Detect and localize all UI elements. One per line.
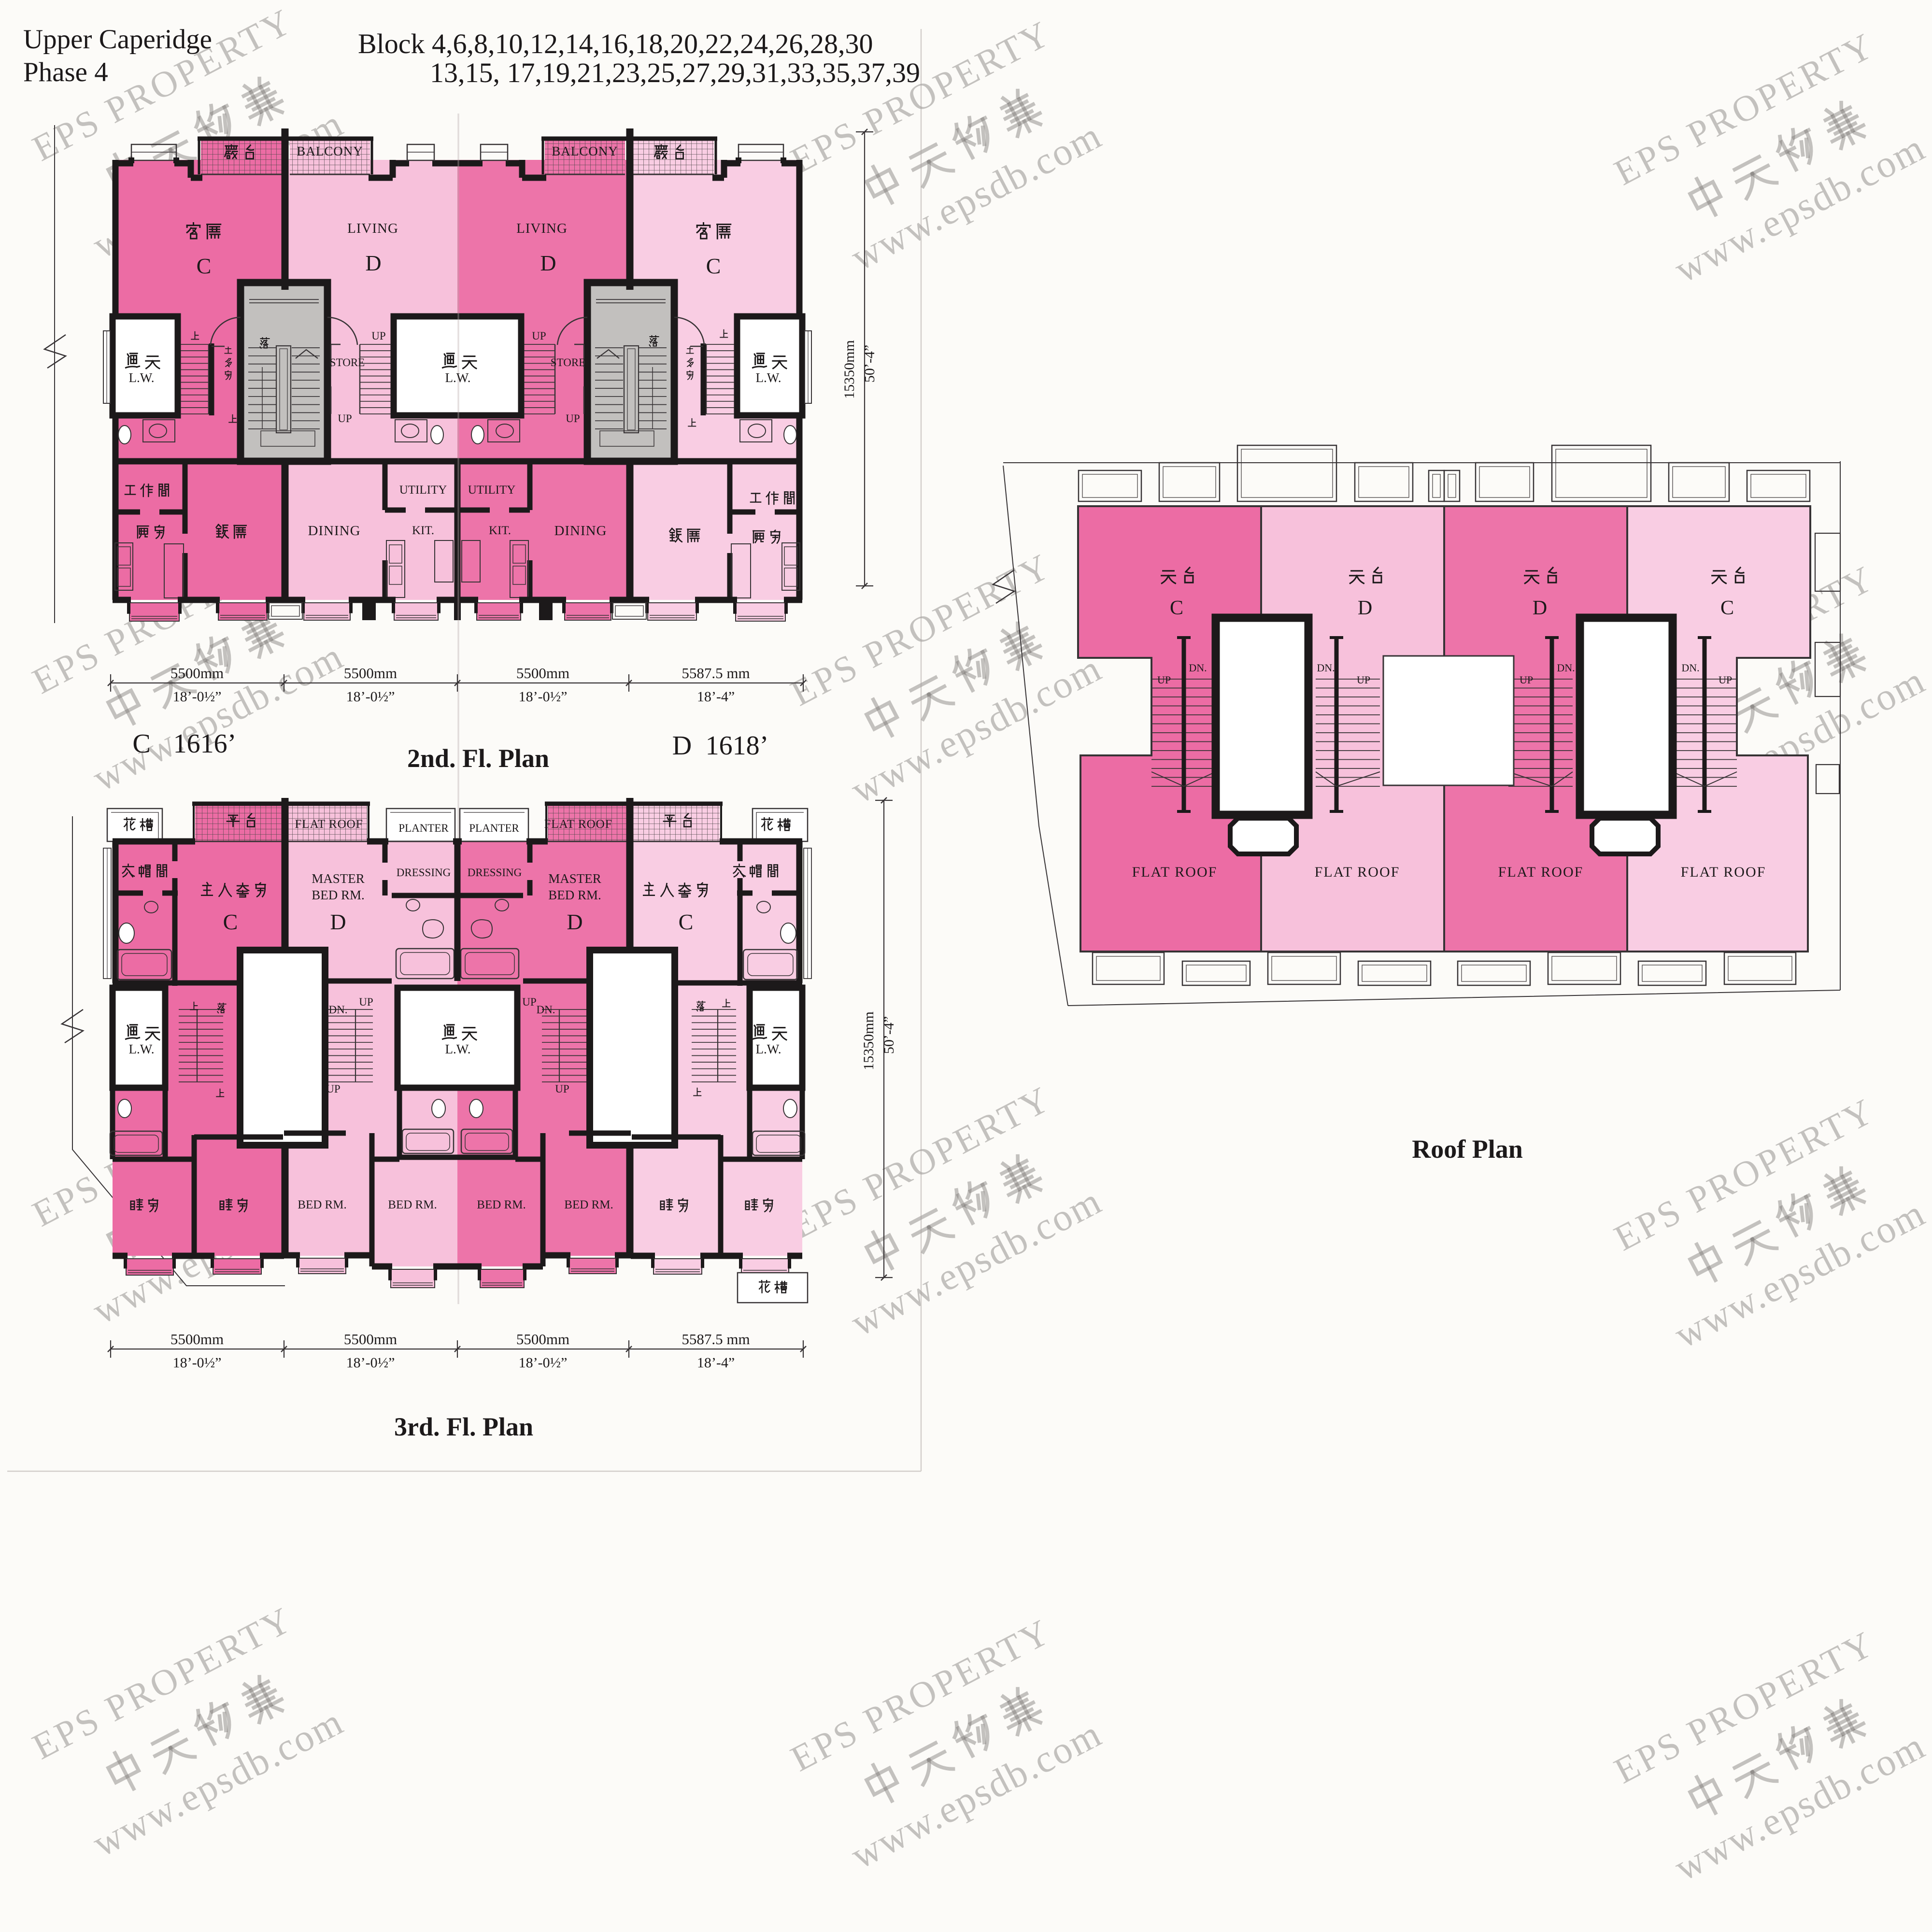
svg-text:UP: UP [359,996,373,1008]
svg-text:UTILITY: UTILITY [399,483,447,497]
svg-text:DN.: DN. [1557,662,1575,674]
svg-text:D: D [567,909,582,934]
svg-text:UP: UP [522,996,536,1008]
svg-text:DRESSING: DRESSING [397,867,451,879]
svg-text:50’-4”: 50’-4” [862,345,878,383]
svg-text:C: C [223,909,238,934]
svg-text:C: C [706,254,721,278]
svg-text:DN.: DN. [1317,662,1335,674]
svg-text:DN.: DN. [329,1004,348,1016]
svg-text:BALCONY: BALCONY [552,144,618,158]
svg-text:50’-4”: 50’-4” [881,1016,897,1054]
svg-text:BED RM.: BED RM. [388,1198,437,1211]
svg-text:UP: UP [326,1083,340,1095]
svg-text:PLANTER: PLANTER [398,822,449,834]
svg-text:MASTER: MASTER [312,871,365,886]
svg-text:18’-4”: 18’-4” [697,689,735,705]
svg-text:L.W.: L.W. [129,1042,155,1056]
svg-text:UP: UP [532,330,546,342]
svg-text:15350mm: 15350mm [861,1011,877,1070]
svg-text:Phase 4: Phase 4 [23,57,108,87]
svg-text:FLAT ROOF: FLAT ROOF [1132,864,1218,880]
svg-text:UP: UP [555,1083,569,1095]
svg-text:1616’: 1616’ [173,729,237,759]
svg-text:C: C [1170,597,1183,619]
svg-text:18’-0½”: 18’-0½” [519,689,568,705]
svg-text:D: D [1358,597,1372,619]
svg-text:DRESSING: DRESSING [468,867,522,879]
svg-text:BED RM.: BED RM. [564,1198,613,1211]
svg-text:18’-0½”: 18’-0½” [173,689,222,705]
svg-text:DN.: DN. [1189,662,1207,674]
svg-text:D: D [672,731,692,761]
svg-text:D: D [540,251,556,275]
svg-text:L.W.: L.W. [129,370,155,385]
svg-text:FLAT ROOF: FLAT ROOF [1681,864,1766,880]
svg-text:18’-0½”: 18’-0½” [519,1355,568,1371]
svg-text:FLAT ROOF: FLAT ROOF [1498,864,1584,880]
svg-text:18’-0½”: 18’-0½” [346,689,395,705]
svg-text:D: D [1533,597,1547,619]
svg-text:UP: UP [1357,674,1370,686]
svg-text:L.W.: L.W. [756,370,781,385]
svg-text:15350mm: 15350mm [841,340,857,399]
svg-text:1618’: 1618’ [706,731,769,761]
svg-text:L.W.: L.W. [756,1042,781,1056]
svg-text:DN.: DN. [1681,662,1699,674]
svg-text:L.W.: L.W. [445,370,471,385]
svg-text:DINING: DINING [554,523,607,539]
svg-text:C: C [132,729,150,759]
svg-text:Block 4,6,8,10,12,14,16,18,20,: Block 4,6,8,10,12,14,16,18,20,22,24,26,2… [358,28,873,59]
svg-text:KIT.: KIT. [412,524,434,537]
svg-text:UTILITY: UTILITY [468,483,516,497]
svg-text:UP: UP [1719,674,1732,686]
svg-text:KIT.: KIT. [489,524,511,537]
svg-text:5500mm: 5500mm [344,1331,397,1348]
svg-text:UP: UP [1157,674,1171,686]
svg-text:13,15, 17,19,21,23,25,27,29,31: 13,15, 17,19,21,23,25,27,29,31,33,35,37,… [430,57,920,88]
svg-text:FLAT ROOF: FLAT ROOF [295,818,363,831]
svg-text:PLANTER: PLANTER [469,822,519,834]
svg-text:FLAT ROOF: FLAT ROOF [544,818,612,831]
svg-text:STORE: STORE [551,356,585,369]
svg-text:3rd. Fl. Plan: 3rd. Fl. Plan [394,1412,533,1441]
svg-text:FLAT ROOF: FLAT ROOF [1315,864,1400,880]
svg-text:UP: UP [338,412,352,425]
svg-text:UP: UP [1520,674,1533,686]
svg-text:LIVING: LIVING [516,221,568,236]
svg-text:DN.: DN. [537,1004,555,1016]
svg-text:BED RM.: BED RM. [312,888,365,902]
svg-text:MASTER: MASTER [548,871,601,886]
svg-text:Roof Plan: Roof Plan [1412,1135,1523,1164]
svg-text:5500mm: 5500mm [516,1331,569,1348]
svg-text:D: D [330,909,346,934]
svg-text:2nd. Fl. Plan: 2nd. Fl. Plan [407,744,549,773]
svg-text:STORE: STORE [330,356,365,369]
svg-text:L.W.: L.W. [445,1042,471,1056]
svg-text:BED RM.: BED RM. [298,1198,346,1211]
svg-text:UP: UP [566,412,580,425]
svg-text:BED RM.: BED RM. [548,888,601,902]
svg-text:BALCONY: BALCONY [297,144,363,158]
svg-text:D: D [365,251,381,275]
svg-text:5587.5 mm: 5587.5 mm [682,665,750,682]
svg-text:5500mm: 5500mm [344,665,397,682]
svg-text:5587.5 mm: 5587.5 mm [682,1331,750,1348]
svg-text:C: C [1720,597,1734,619]
svg-text:LIVING: LIVING [347,221,398,236]
svg-text:18’-0½”: 18’-0½” [173,1355,222,1371]
svg-text:18’-0½”: 18’-0½” [346,1355,395,1371]
svg-text:BED RM.: BED RM. [477,1198,526,1211]
svg-text:5500mm: 5500mm [170,665,224,682]
svg-text:C: C [197,254,212,278]
svg-text:UP: UP [371,330,385,342]
svg-text:Upper Caperidge: Upper Caperidge [23,24,212,55]
svg-text:5500mm: 5500mm [170,1331,224,1348]
svg-text:C: C [679,909,694,934]
svg-text:5500mm: 5500mm [516,665,569,682]
svg-text:18’-4”: 18’-4” [697,1355,735,1371]
svg-text:DINING: DINING [308,523,360,539]
